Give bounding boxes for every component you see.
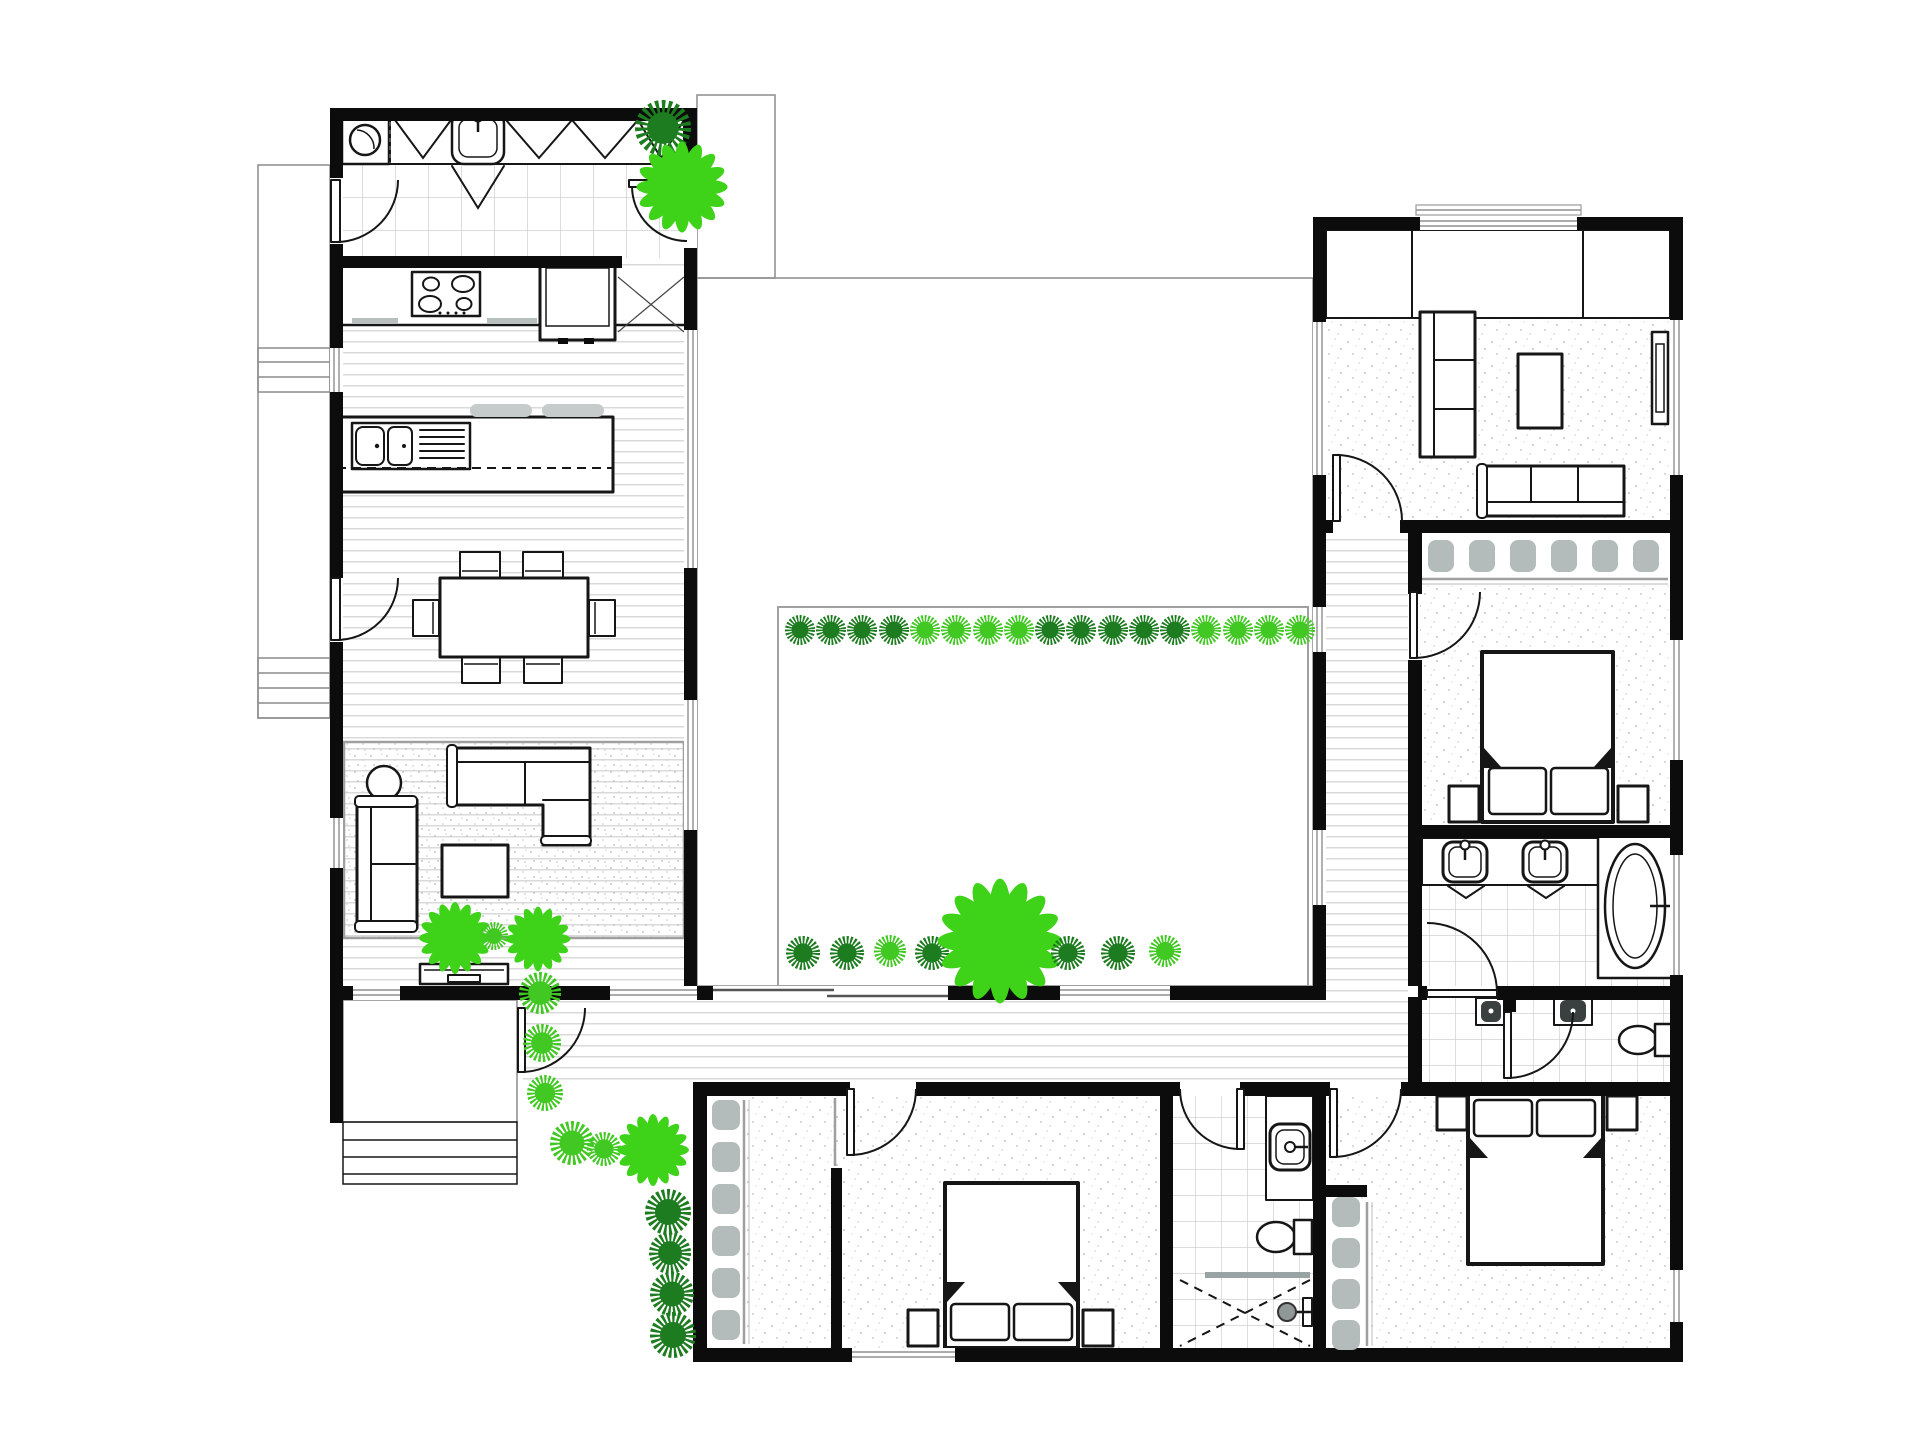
window xyxy=(1060,986,1170,1000)
flower-plant-icon xyxy=(938,879,1063,1004)
bush-plant-icon xyxy=(555,1126,589,1160)
bedside-table xyxy=(1449,786,1479,822)
hanging-clothes-icon xyxy=(1332,1279,1360,1309)
window xyxy=(1313,830,1326,905)
window xyxy=(1670,640,1683,760)
dining-table xyxy=(440,578,588,657)
window xyxy=(684,440,697,568)
window xyxy=(1670,1270,1683,1322)
shower-head-icon xyxy=(1278,1303,1296,1321)
bush-plant-icon xyxy=(650,1194,685,1229)
window xyxy=(684,330,697,440)
hanging-clothes-icon xyxy=(712,1226,740,1256)
hanging-clothes-icon xyxy=(712,1268,740,1298)
bush-plant-icon xyxy=(655,1317,690,1352)
hanging-clothes-icon xyxy=(712,1100,740,1130)
window xyxy=(1313,607,1326,652)
hanging-clothes-icon xyxy=(1592,540,1618,572)
pillow xyxy=(1551,768,1608,814)
toilet-icon xyxy=(1257,1222,1295,1252)
bedside-table xyxy=(908,1310,938,1346)
window xyxy=(610,986,697,1000)
flower-plant-icon xyxy=(506,907,571,972)
west-deck xyxy=(258,165,330,718)
master-robe-floor xyxy=(1422,533,1670,580)
hanging-clothes-icon xyxy=(712,1184,740,1214)
hanging-clothes-icon xyxy=(1332,1320,1360,1350)
dining-chair xyxy=(523,552,563,578)
window xyxy=(1670,855,1683,975)
hanging-clothes-icon xyxy=(712,1142,740,1172)
hanging-clothes-icon xyxy=(1633,540,1659,572)
hanging-clothes-icon xyxy=(1428,540,1454,572)
oven-icon xyxy=(540,262,615,340)
bar-stool-icon xyxy=(470,404,532,417)
pillow xyxy=(1489,768,1546,814)
window xyxy=(1416,205,1581,230)
bush-plant-icon xyxy=(531,1079,559,1107)
hanging-clothes-icon xyxy=(1332,1238,1360,1268)
pillow xyxy=(1014,1304,1072,1340)
shower-threshold xyxy=(1205,1272,1310,1278)
round-side-table xyxy=(367,766,401,800)
built-in-cabinets xyxy=(1326,230,1670,318)
tv-icon xyxy=(1652,332,1668,424)
sliding-door xyxy=(713,986,948,1000)
bush-plant-icon xyxy=(655,1277,689,1311)
bedside-table xyxy=(1437,1096,1467,1130)
bar-stool-icon xyxy=(542,404,604,417)
coffee-table xyxy=(442,845,508,897)
flower-plant-icon xyxy=(419,902,491,974)
bedside-table xyxy=(1607,1096,1637,1130)
south-hallway-floor xyxy=(523,1000,1408,1082)
hanging-clothes-icon xyxy=(1332,1197,1360,1227)
west-deck-steps-upper xyxy=(258,348,330,392)
dining-chair xyxy=(413,600,439,636)
pillow xyxy=(1537,1100,1595,1136)
dining-chair xyxy=(524,657,562,683)
floor-plan-page xyxy=(0,0,1920,1440)
bedside-table xyxy=(1618,786,1648,822)
toilet-icon xyxy=(1619,1026,1657,1054)
dining-chair xyxy=(460,552,500,578)
bedside-table xyxy=(1083,1310,1113,1346)
window xyxy=(353,986,400,1000)
coffee-table xyxy=(1518,354,1562,428)
pillow xyxy=(951,1304,1009,1340)
hanging-clothes-icon xyxy=(1510,540,1536,572)
flower-plant-icon xyxy=(617,1114,689,1186)
window xyxy=(330,348,343,392)
east-corridor-floor xyxy=(1326,533,1408,1082)
window xyxy=(1313,322,1326,475)
bush-plant-icon xyxy=(654,1237,686,1269)
dining-chair xyxy=(589,600,615,636)
bush-plant-icon xyxy=(591,1136,617,1162)
hanging-clothes-icon xyxy=(1551,540,1577,572)
sofa-three-seat xyxy=(1420,312,1475,457)
window xyxy=(684,700,697,830)
pillow xyxy=(1474,1100,1532,1136)
kitchen-bench xyxy=(343,268,684,325)
dining-chair xyxy=(462,657,500,683)
hanging-clothes-icon xyxy=(712,1310,740,1340)
floor-plan-drawing xyxy=(0,0,1920,1440)
window xyxy=(852,1348,955,1362)
entry-porch xyxy=(343,1000,517,1122)
window xyxy=(330,818,343,868)
hanging-clothes-icon xyxy=(1469,540,1495,572)
sofa-three-seat xyxy=(1484,466,1624,516)
window xyxy=(1670,320,1683,475)
flower-plant-icon xyxy=(636,141,727,232)
